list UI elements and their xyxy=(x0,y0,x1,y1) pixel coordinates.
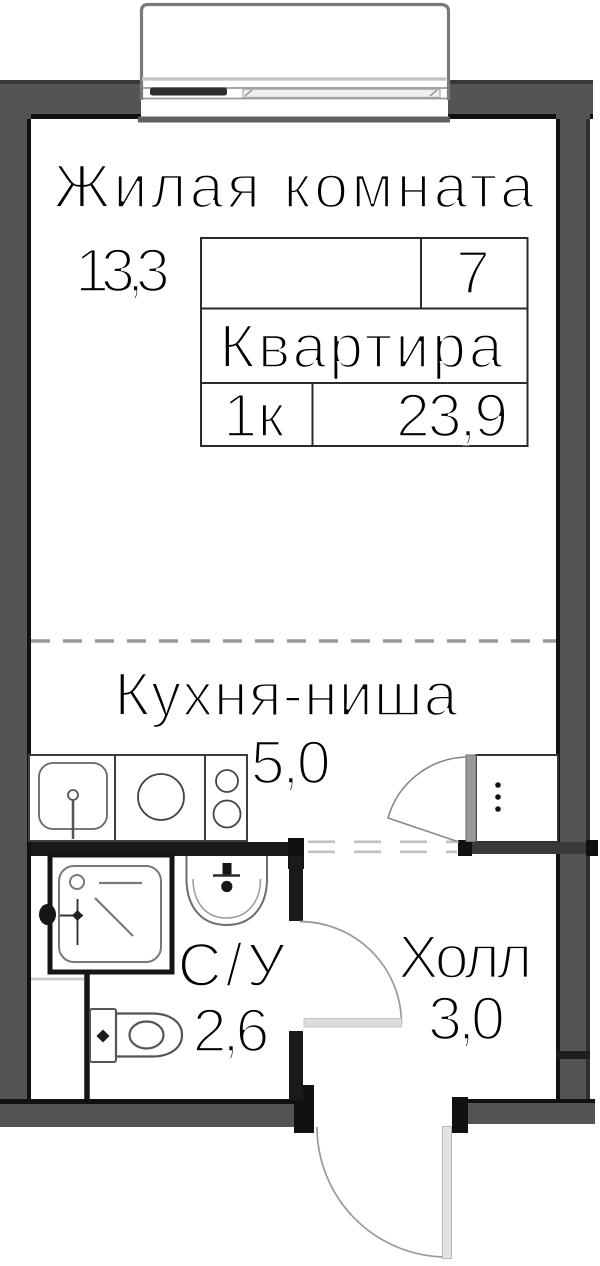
svg-text:7: 7 xyxy=(456,239,490,307)
svg-text:5,0: 5,0 xyxy=(251,729,329,797)
svg-text:13,3: 13,3 xyxy=(75,237,168,305)
svg-text:Холл: Холл xyxy=(398,923,529,991)
svg-text:Кухня-ниша: Кухня-ниша xyxy=(114,661,458,729)
svg-text:С/У: С/У xyxy=(178,931,290,999)
svg-text:23,9: 23,9 xyxy=(396,382,506,450)
svg-text:1к: 1к xyxy=(223,382,285,450)
svg-text:Жилая комната: Жилая комната xyxy=(54,153,537,221)
svg-text:Квартира: Квартира xyxy=(219,313,505,381)
svg-text:3,0: 3,0 xyxy=(428,985,503,1053)
svg-text:2,6: 2,6 xyxy=(193,997,268,1065)
